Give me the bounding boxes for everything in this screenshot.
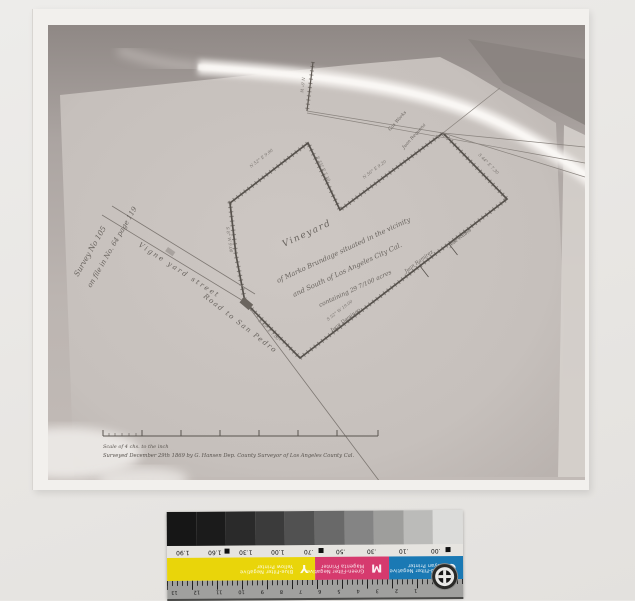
density-label: .10 xyxy=(388,547,420,554)
density-label: 1.90 xyxy=(167,548,199,555)
patch-yellow: Y Blue-Filter NegativeYellow Printer xyxy=(167,557,315,581)
registration-target-icon xyxy=(438,570,451,583)
map-photo: Vineyard of Marko Brundage situated in t… xyxy=(48,25,585,480)
color-patch-row: Y Blue-Filter NegativeYellow Printer M G… xyxy=(167,556,463,581)
patch-caption: Magenta Printer xyxy=(307,563,365,568)
density-label: 1.00 xyxy=(262,548,294,555)
gray-step xyxy=(315,511,345,545)
density-label: 1.30 xyxy=(230,548,262,555)
gray-step xyxy=(344,511,374,545)
gray-step xyxy=(403,510,433,544)
scanned-photograph-page: Vineyard of Marko Brundage situated in t… xyxy=(0,0,635,600)
survey-caption: Surveyed December 29th 1869 by G. Hansen… xyxy=(103,453,354,459)
gray-step xyxy=(285,511,315,545)
density-label: .70 xyxy=(293,547,325,554)
patch-caption: Cyan Printer xyxy=(389,563,441,568)
density-label: .50 xyxy=(325,547,357,554)
patch-magenta: M Green-Filter NegativeMagenta Printer xyxy=(315,556,389,580)
patch-caption: Yellow Printer xyxy=(240,564,293,569)
patch-caption: Blue-Filter Negative xyxy=(240,569,293,574)
gray-step xyxy=(255,511,285,545)
scale-caption: Scale of 4 chs. to the inch xyxy=(103,444,169,450)
density-label: .00 xyxy=(419,547,451,554)
gray-step xyxy=(167,512,197,546)
density-label: 1.60 xyxy=(199,548,231,555)
density-marker xyxy=(319,547,324,552)
density-label: .30 xyxy=(356,547,388,554)
patch-letter-m: M xyxy=(364,561,389,574)
photo-print: Vineyard of Marko Brundage situated in t… xyxy=(33,9,589,490)
density-marker xyxy=(445,547,450,552)
gray-scale-steps xyxy=(167,510,463,546)
calibration-strip: 1.90 1.60 1.30 1.00 .70 .50 .30 .10 .00 … xyxy=(167,510,464,599)
ruler: 12 34 56 78 910 1112 13 xyxy=(167,579,463,601)
gray-step xyxy=(226,511,256,545)
patch-caption: Red-Filter Negative xyxy=(390,568,442,573)
survey-map-drawing: Vineyard of Marko Brundage situated in t… xyxy=(48,25,585,480)
density-marker xyxy=(224,548,229,553)
gray-step xyxy=(433,510,463,544)
patch-cyan: C Red-Filter NegativeCyan Printer xyxy=(389,556,463,580)
gray-step xyxy=(196,512,226,546)
patch-caption: Green-Filter Negative xyxy=(307,568,365,573)
ruler-numbers: 12 34 56 78 910 1112 13 xyxy=(171,587,417,595)
gray-step xyxy=(374,510,404,544)
